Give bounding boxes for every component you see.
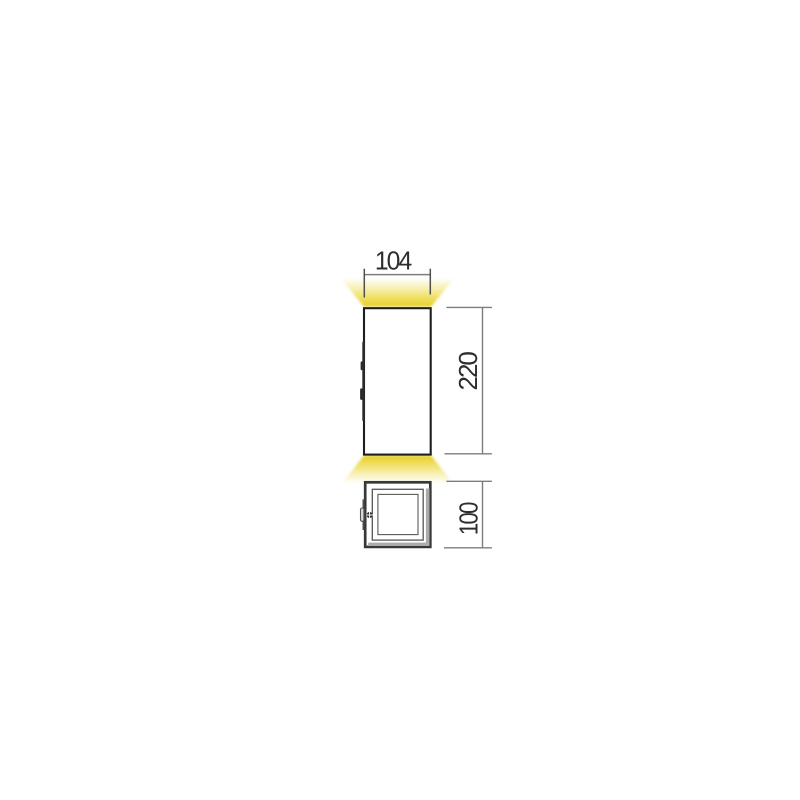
svg-text:104: 104 xyxy=(375,247,412,276)
svg-text:100: 100 xyxy=(455,502,484,535)
svg-text:220: 220 xyxy=(453,352,483,391)
